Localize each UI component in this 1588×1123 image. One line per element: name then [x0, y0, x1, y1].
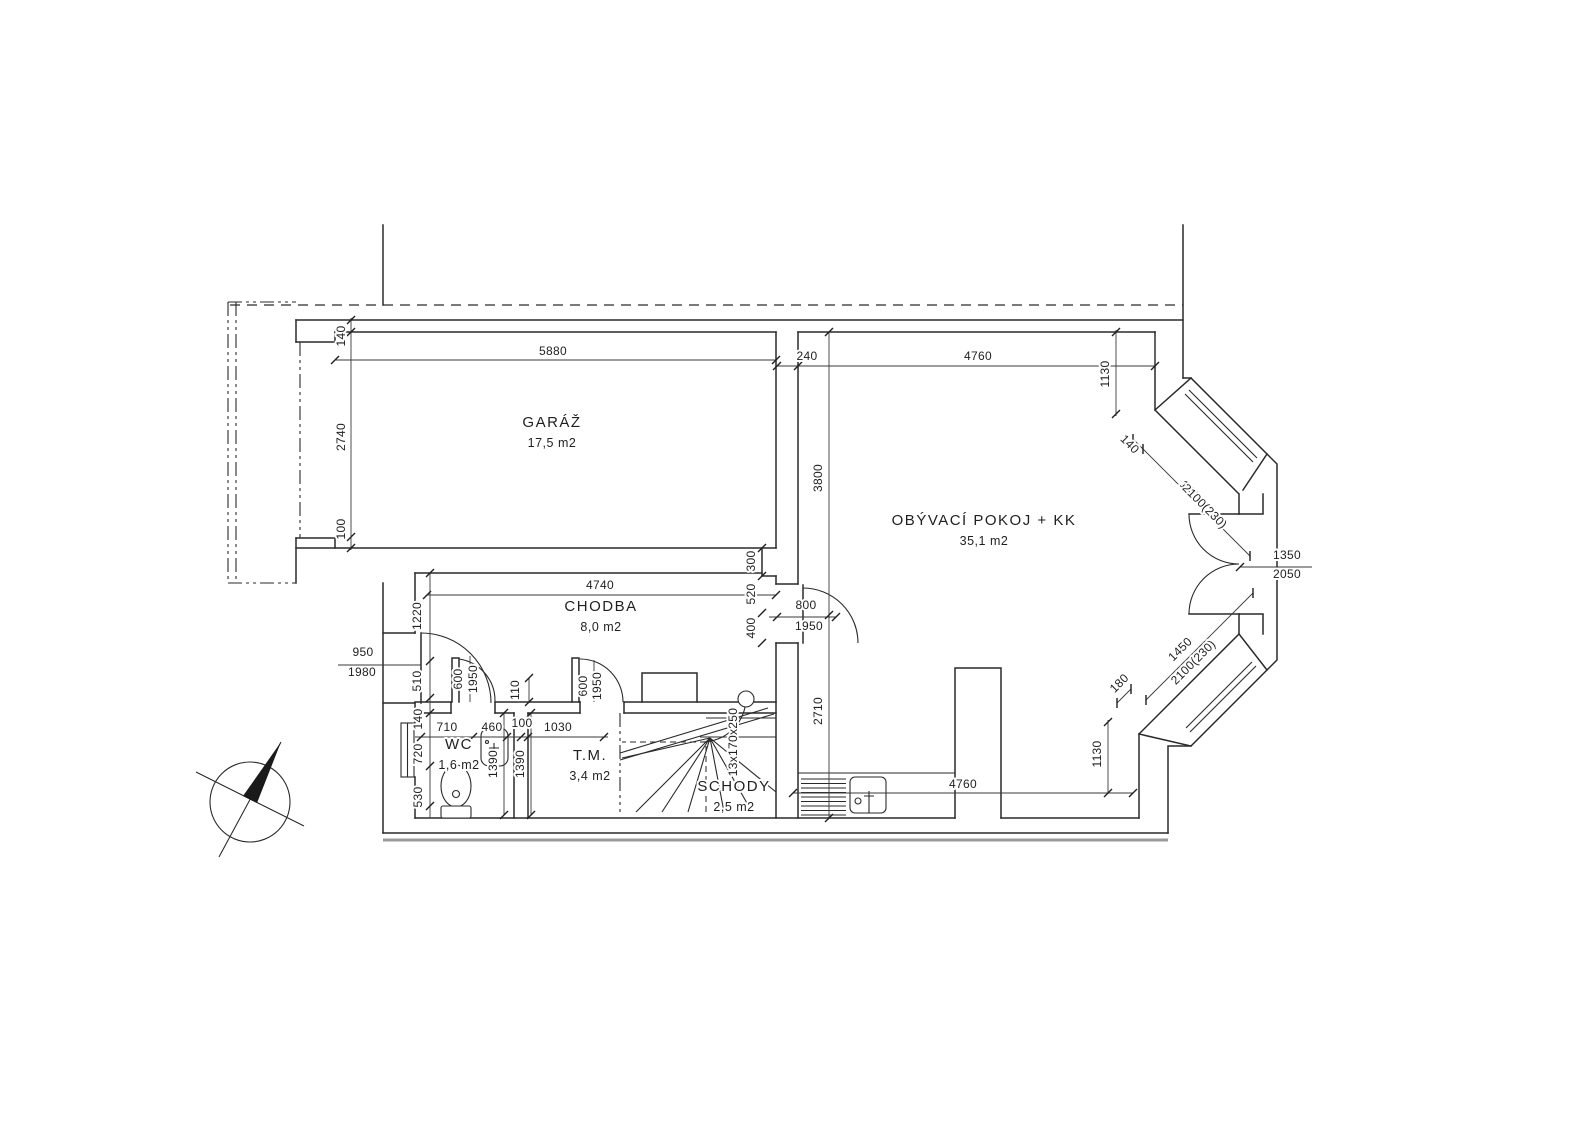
room-label-schody: SCHODY — [697, 778, 770, 795]
kitchen-counter — [798, 773, 955, 815]
doors — [421, 514, 1239, 703]
toilet — [441, 765, 471, 818]
dimension-text: 5880 — [539, 344, 567, 358]
room-area-garaz: 17,5 m2 — [528, 436, 577, 450]
window-bottom-glazing — [1186, 662, 1256, 732]
room-label-chodba: CHODBA — [564, 598, 637, 615]
dimension-text: 600 — [576, 676, 590, 697]
dimension-text: 510 — [410, 671, 424, 692]
kitchen-sink — [850, 777, 886, 813]
dimension-text: 3800 — [811, 464, 825, 492]
dimension-text: 1980 — [348, 665, 376, 679]
dimension-lines — [331, 316, 1312, 822]
walls — [296, 225, 1277, 840]
dimension-text: 13x170x250 — [726, 708, 740, 776]
dimension-text: 2100(230) — [1180, 481, 1231, 532]
dimension-text: 4760 — [964, 349, 992, 363]
dimension-text: 710 — [437, 720, 458, 734]
dimension-text: 950 — [353, 645, 374, 659]
entrance-door-swing — [421, 633, 491, 703]
dimension-text: 1950 — [590, 672, 604, 700]
compass-needle — [243, 742, 281, 803]
dimension-text: 1220 — [410, 602, 424, 630]
dimension-text: 4740 — [586, 578, 614, 592]
living-room-door-swing — [803, 588, 858, 643]
bay-door-swings — [1189, 514, 1239, 614]
dimension-text: 520 — [744, 584, 758, 605]
dimension-text: 720 — [411, 744, 425, 765]
dimension-text: 1030 — [544, 720, 572, 734]
dimension-text: 1390 — [513, 750, 527, 778]
dimension-text: 1950 — [795, 619, 823, 633]
chimney-block — [955, 668, 1001, 818]
dimension-text: 2740 — [334, 423, 348, 451]
stair-walk-line — [622, 742, 706, 812]
dimension-text: 1350 — [1273, 548, 1301, 562]
dimension-text: 2050 — [1273, 567, 1301, 581]
room-area-chodba: 8,0 m2 — [580, 620, 621, 634]
dimension-text: 140 — [1117, 432, 1142, 457]
dimension-text: 140 — [411, 709, 425, 730]
dimension-text: 600 — [451, 669, 465, 690]
room-label-garaz: GARÁŽ — [522, 414, 581, 431]
dimension-text: 4760 — [949, 777, 977, 791]
room-area-schody: 2,5 m2 — [713, 800, 754, 814]
dimension-text: 100 — [334, 519, 348, 540]
dimension-text: 100 — [512, 716, 533, 730]
dimension-text: 1950 — [466, 665, 480, 693]
room-label-obyvaci-pokoj: OBÝVACÍ POKOJ + KK — [892, 512, 1077, 529]
room-label-tm: T.M. — [573, 747, 607, 764]
dimension-text: 400 — [744, 618, 758, 639]
room-area-wc: 1,6 m2 — [438, 758, 479, 772]
site-boundary-lines — [228, 302, 1183, 583]
compass-rose — [196, 742, 304, 857]
dimension-text: 530 — [411, 787, 425, 808]
dimension-text: 1130 — [1098, 360, 1112, 387]
room-area-obyvaci-pokoj: 35,1 m2 — [960, 534, 1009, 548]
dimension-text: 2710 — [811, 697, 825, 725]
fixtures — [401, 668, 1001, 818]
dimension-text: 110 — [508, 680, 522, 700]
stair-newel-post — [738, 691, 754, 707]
dimension-text: 1390 — [486, 750, 500, 778]
dimension-text: 1130 — [1090, 740, 1104, 767]
dimension-text: 240 — [797, 349, 818, 363]
room-label-wc: WC — [445, 736, 473, 753]
dimension-text: 140 — [334, 326, 348, 347]
dimension-text: 460 — [482, 720, 503, 734]
floor-plan-page: GARÁŽ17,5 m2OBÝVACÍ POKOJ + KK35,1 m2CHO… — [0, 0, 1588, 1123]
floor-plan-drawing: GARÁŽ17,5 m2OBÝVACÍ POKOJ + KK35,1 m2CHO… — [0, 0, 1588, 1123]
dimension-text: 800 — [796, 598, 817, 612]
room-area-tm: 3,4 m2 — [569, 769, 610, 783]
dimension-text: 300 — [744, 551, 758, 572]
labels-layer: GARÁŽ17,5 m2OBÝVACÍ POKOJ + KK35,1 m2CHO… — [334, 326, 1301, 814]
